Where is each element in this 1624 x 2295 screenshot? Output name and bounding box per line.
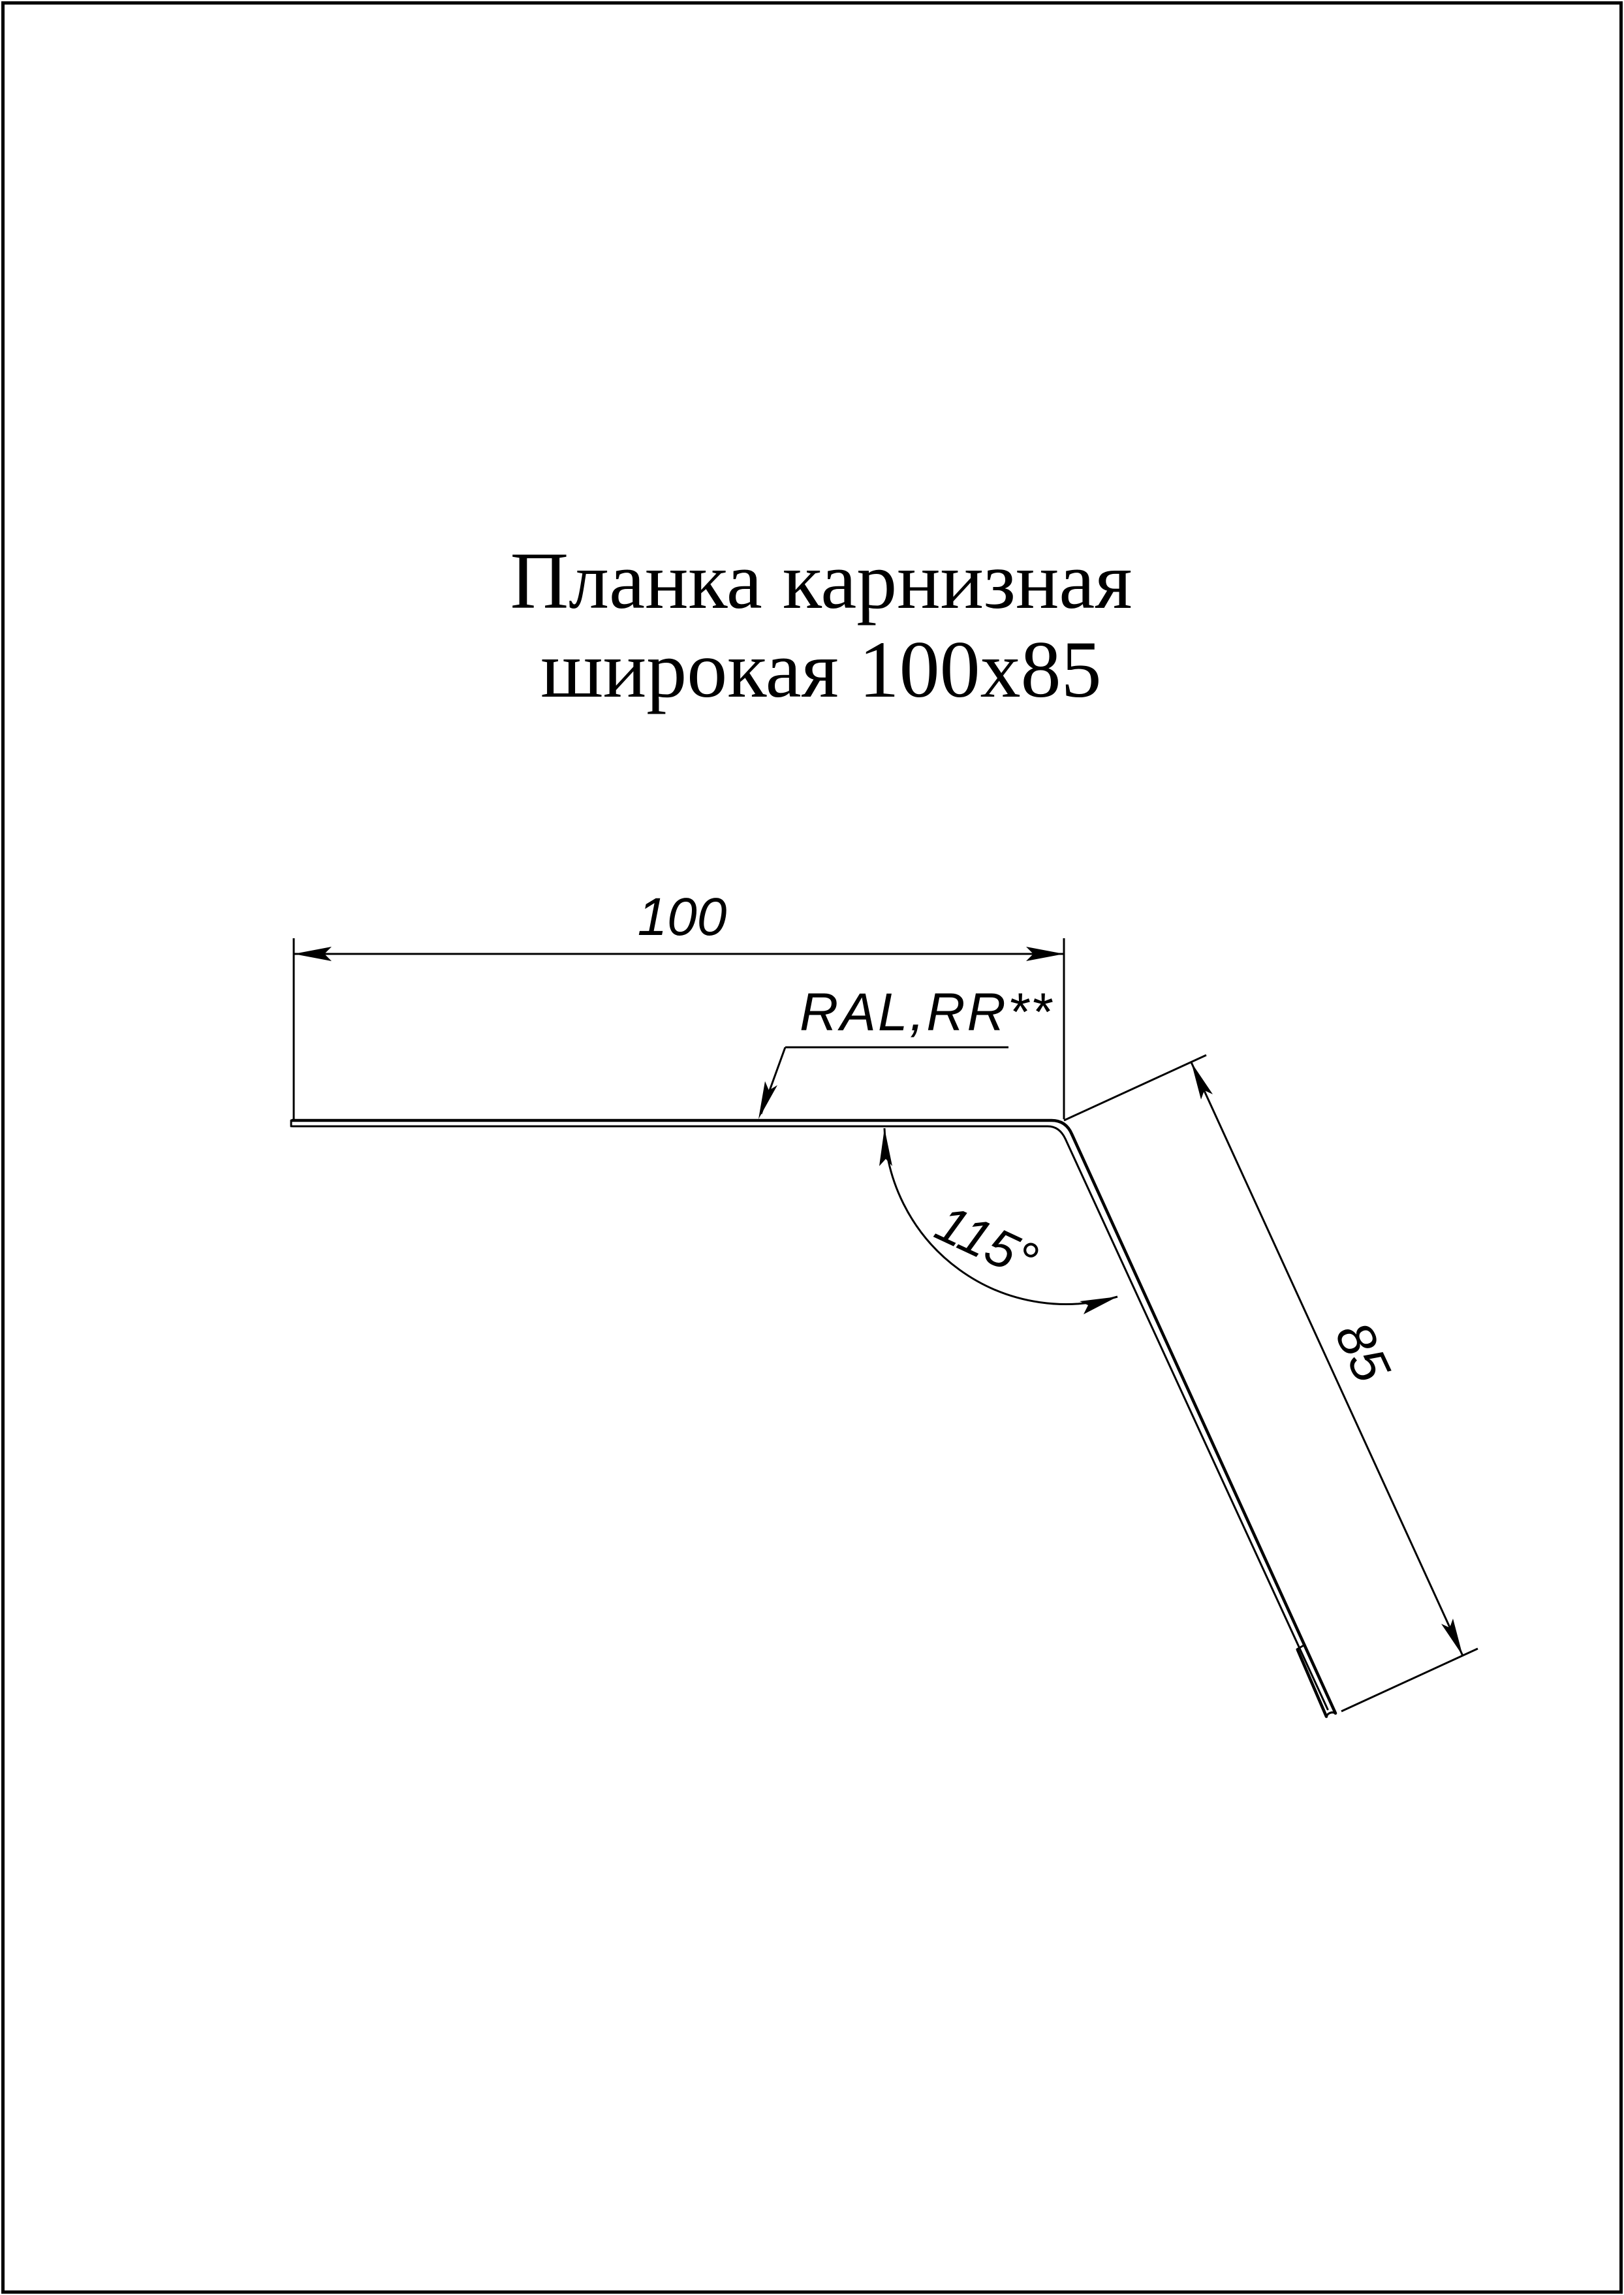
length-dimension-line	[1191, 1062, 1463, 1656]
profile-inner-line	[292, 1126, 1328, 1709]
hem-u-turn	[1326, 1713, 1335, 1717]
angle-arc-arrow-top	[879, 1128, 892, 1166]
profile-outer-line	[292, 1120, 1335, 1713]
width-dim-value: 100	[638, 887, 727, 947]
angle-arc-arrow-bottom	[1080, 1297, 1117, 1314]
length-dim-arrow-top	[1191, 1062, 1213, 1100]
coating-leader	[761, 1047, 1008, 1114]
profile-outline	[291, 1120, 1335, 1717]
length-dimension	[1064, 1055, 1478, 1711]
angle-dim-value: 115°	[928, 1194, 1046, 1290]
length-extension-line-top	[1064, 1055, 1206, 1120]
coating-label: RAL,RR**	[800, 983, 1054, 1042]
length-dim-arrow-bottom	[1441, 1619, 1463, 1656]
length-extension-line-bottom	[1341, 1649, 1478, 1711]
coating-leader-arrow	[758, 1081, 777, 1119]
drawing-sheet: Планка карнизная широкая 100x85 100	[0, 0, 1624, 2295]
technical-drawing: 100 RAL,RR** 115° 85	[0, 0, 1624, 2295]
